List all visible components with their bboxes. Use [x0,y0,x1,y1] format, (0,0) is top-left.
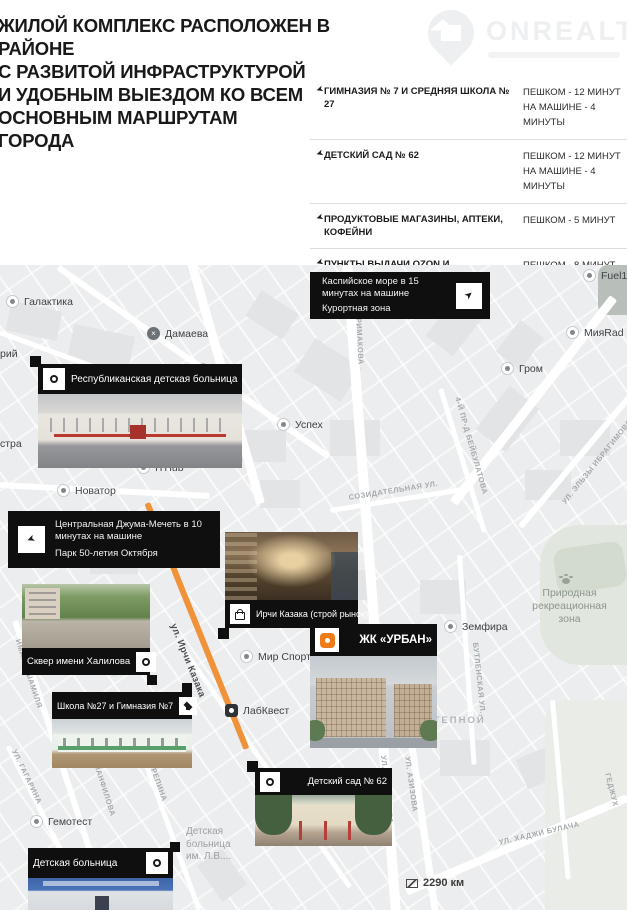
hospital-photo [38,394,242,468]
poi-labkvest: ЛабКвест [225,704,289,717]
navigation-arrow-icon: ➤ [309,148,325,162]
poi-icon [30,815,43,828]
poi-icon [6,295,19,308]
infra-label: ГИМНАЗИЯ № 7 И СРЕДНЯЯ ШКОЛА № 27 [324,85,523,111]
map-pin-icon [418,0,483,65]
southwest-arrow-icon: ➤ [26,533,38,546]
kindergarten-icon [266,778,274,786]
poi-galaktika: Галактика [6,295,73,308]
shopping-bag-icon-box [230,604,250,624]
poi-novator: Новатор [57,484,116,497]
map-building [260,480,300,508]
market-label: Ирчи Казака (строй рынок) [256,609,368,619]
skver-card-bar: Сквер имени Халилова [22,648,150,675]
kindergarten-card-bar: Детский сад № 62 [255,768,392,795]
school-card-bar: Школа №27 и Гимназия №7 [52,692,192,719]
poi-icon [277,418,290,431]
poi-icon [444,620,457,633]
direction-arrow-box: ➤ [456,283,482,309]
mosque-text: Центральная Джума-Мечеть в 10 минутах на… [55,519,210,560]
caspian-text: Каспийское море в 15 минутах на машине К… [322,276,448,315]
graduation-cap-icon-box [179,697,197,715]
hospital-card-bar: Республиканская детская больница [38,364,242,394]
poi-mir-sporta: Мир Спорта [240,650,317,663]
infra-times: ПЕШКОМ - 12 МИНУТНА МАШИНЕ - 4 МИНУТЫ [523,85,627,130]
direction-arrow-box: ➤ [18,526,45,553]
poi-miyarad: МияRad [566,326,624,339]
map-scale: 2290 км [406,877,464,889]
infra-label: ДЕТСКИЙ САД № 62 [324,149,523,162]
infra-row: ➤ ГИМНАЗИЯ № 7 И СРЕДНЯЯ ШКОЛА № 27 ПЕШК… [310,76,627,140]
poi-uspeh: Успех [277,418,323,431]
urban-card-bar: ЖК «УРБАН» [310,624,437,656]
shopping-bag-icon [235,612,245,620]
poi-gemotest: Гемотест [30,815,92,828]
fuel-station-icon [583,269,596,282]
kindergarten-icon-box [260,772,280,792]
paw-icon [562,578,570,584]
poi-damaeva: ×Дамаева [147,327,208,340]
skver-label: Сквер имени Халилова [27,656,130,667]
poi-fuel: Fuel1 [583,269,627,282]
park-icon-box [136,652,156,672]
logo-tagline [488,52,620,58]
school-label: Школа №27 и Гимназия №7 [57,701,173,711]
poi-partial: стра [0,438,22,450]
poi-icon [566,326,579,339]
hospital-icon [153,859,161,867]
hospital-lv-label: Детская больница им. Л.В.... [186,826,231,864]
poi-icon [501,362,514,375]
hospital-icon [50,375,58,383]
metro-icon: × [147,327,160,340]
poi-zemfira: Земфира [444,620,508,633]
infra-row: ➤ ПРОДУКТОВЫЕ МАГАЗИНЫ, АПТЕКИ, КОФЕЙНИ … [310,204,627,249]
mosque-callout: ➤ Центральная Джума-Мечеть в 10 минутах … [8,511,220,568]
infra-row: ➤ ДЕТСКИЙ САД № 62 ПЕШКОМ - 12 МИНУТНА М… [310,140,627,204]
kindergarten-photo [255,795,392,846]
graduation-cap-icon [182,701,194,711]
urban-logo-icon [320,633,335,648]
hospital-label: Республиканская детская больница [71,374,237,385]
children-hospital-label: Детская больница [33,858,140,869]
poi-icon [240,650,253,663]
urban-logo-box [315,628,339,652]
park-icon [142,658,150,666]
infra-times: ПЕШКОМ - 5 МИНУТ [523,213,627,228]
urban-photo [310,656,437,748]
nature-zone-label: Природная рекреационная зона [512,587,627,626]
hospital-icon-box [43,368,65,390]
skver-photo [22,584,150,648]
market-photo [225,532,358,600]
infra-label: ПРОДУКТОВЫЕ МАГАЗИНЫ, АПТЕКИ, КОФЕЙНИ [324,213,523,239]
infra-times: ПЕШКОМ - 12 МИНУТНА МАШИНЕ - 4 МИНУТЫ [523,149,627,194]
onrealt-logo: ONREALT [428,8,623,68]
kindergarten-label: Детский сад № 62 [286,776,387,787]
lab-icon [225,704,238,717]
map-marker [218,628,229,639]
school-photo [52,719,192,768]
page-title: ЖИЛОЙ КОМПЛЕКС РАСПОЛОЖЕН В РАЙОНЕ С РАЗ… [0,14,358,152]
children-hospital-photo [28,878,173,910]
poi-grom: Гром [501,362,543,375]
map-building [440,740,490,776]
hospital-icon-box [146,852,168,874]
poi-icon [57,484,70,497]
poi-partial: рий [0,348,18,360]
northeast-arrow-icon: ➤ [462,289,475,303]
children-hospital-card-bar: Детская больница [28,848,173,878]
ruler-icon [406,879,418,888]
promo-page: ЖИЛОЙ КОМПЛЕКС РАСПОЛОЖЕН В РАЙОНЕ С РАЗ… [0,0,627,910]
caspian-callout: Каспийское море в 15 минутах на машине К… [310,272,490,319]
navigation-arrow-icon: ➤ [309,212,325,226]
urban-label: ЖК «УРБАН» [345,634,432,646]
map-marker [147,675,157,685]
logo-text: ONREALT [486,16,627,47]
navigation-arrow-icon: ➤ [309,84,325,98]
